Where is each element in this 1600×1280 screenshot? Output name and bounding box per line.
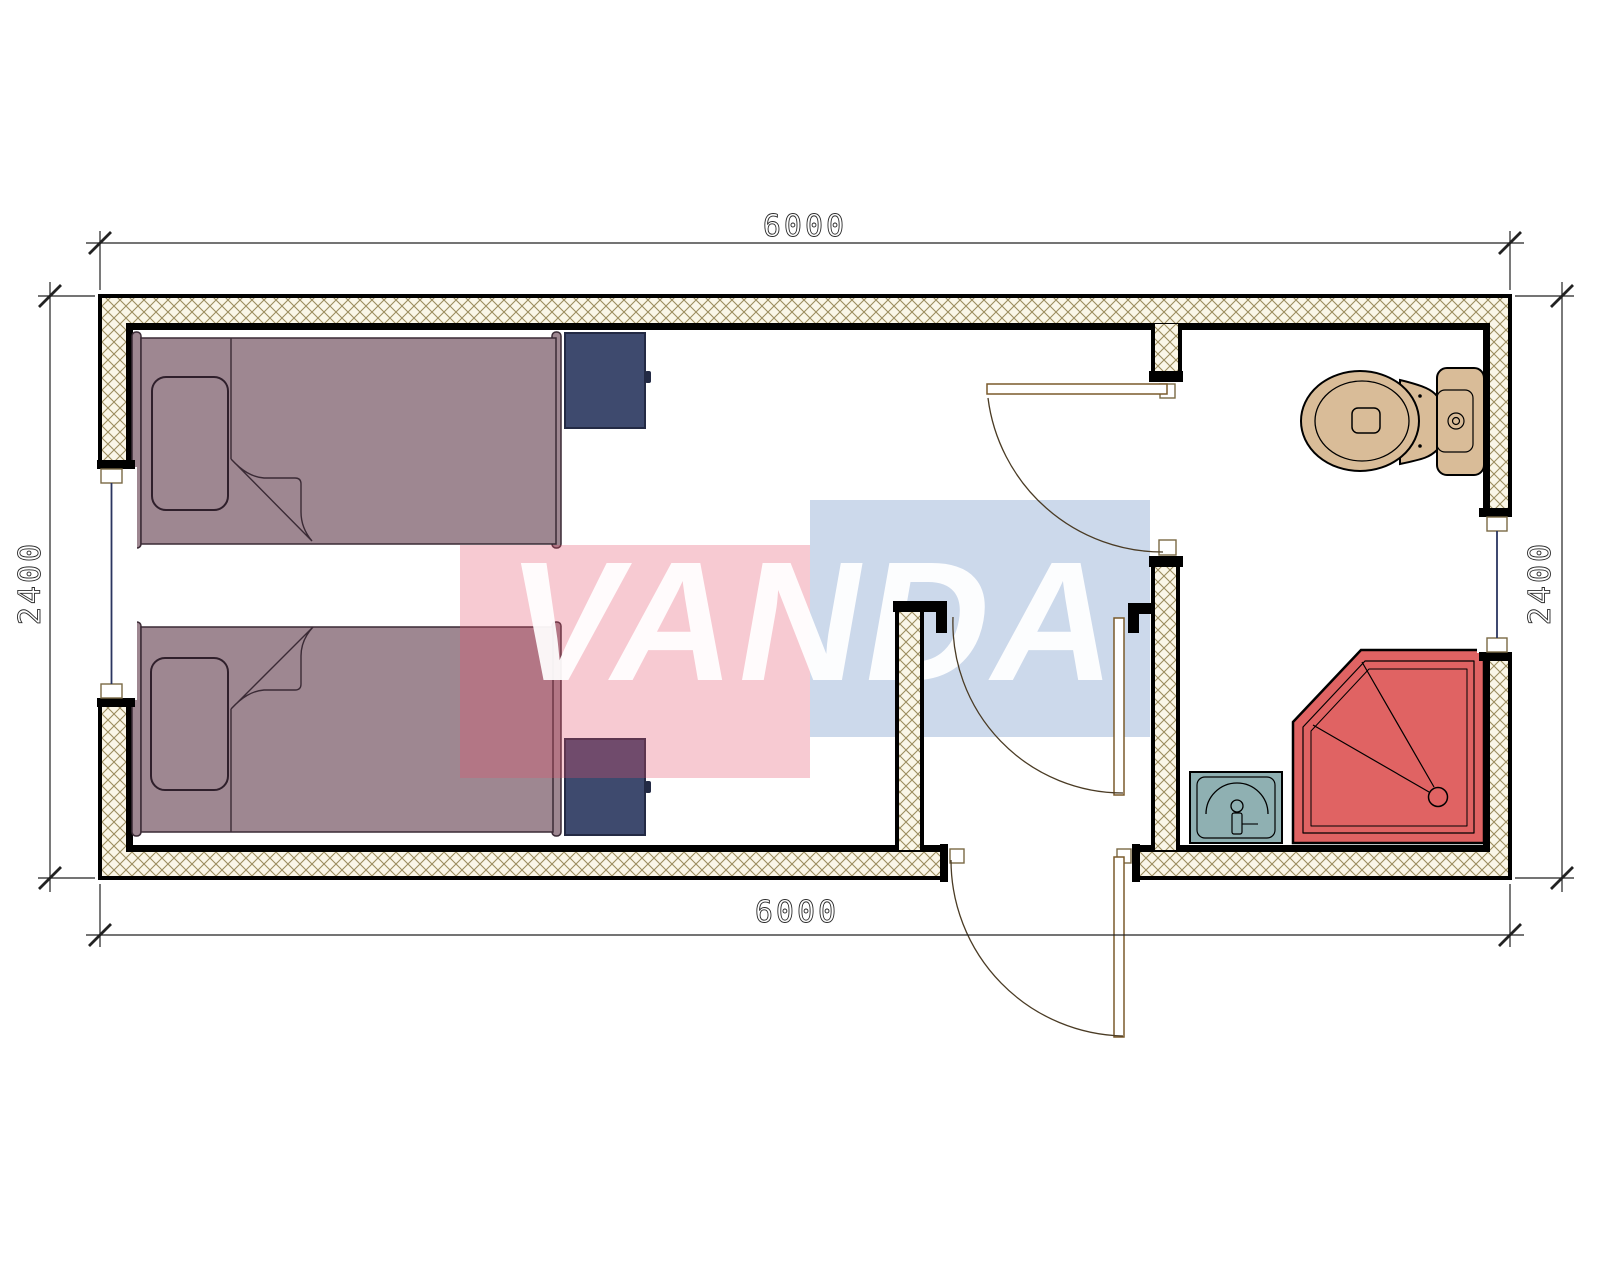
vestibule-right-cap	[1149, 556, 1183, 567]
window-right-opening	[1477, 516, 1515, 653]
vestibule-left-hatch	[897, 606, 922, 850]
vestibule-door-leaf	[1114, 618, 1124, 795]
interior-wall-top-stub-hatch	[1153, 324, 1180, 375]
vestibule-left-cap	[893, 601, 947, 612]
nightstand-top-knob	[645, 371, 651, 383]
window-left-jamb-bottom	[101, 684, 122, 698]
bed-top	[132, 332, 561, 548]
vestibule-right-edge-b	[1176, 562, 1180, 850]
entry-door-swing-arc	[951, 860, 1123, 1036]
watermark-text: VANDA	[493, 527, 1138, 717]
interior-wall-top-stub-cap	[1149, 371, 1183, 382]
toilet-tank	[1437, 368, 1484, 475]
entry-door-leaf	[1114, 857, 1124, 1037]
dimension-label-right: 2400	[1523, 541, 1558, 625]
bathroom-door-jamb-bottom	[1159, 540, 1176, 555]
entry-opening-cap-left	[940, 844, 948, 882]
bed-top-pillow	[152, 377, 228, 510]
vestibule-left-edge-a	[895, 606, 899, 850]
interior-wall-top-stub-edge-right	[1178, 324, 1182, 375]
window-left	[94, 460, 137, 707]
toilet	[1301, 368, 1484, 475]
vestibule-right-lip	[1128, 603, 1155, 614]
vestibule-right-doorstop	[1128, 614, 1139, 633]
shower-drain	[1429, 788, 1448, 807]
dimension-label-bottom: 6000	[755, 895, 839, 930]
nightstand-top	[565, 333, 651, 428]
window-right-cap-top	[1479, 508, 1512, 517]
window-left-cap-top	[97, 460, 135, 469]
entry-opening	[940, 840, 1140, 884]
window-right-cap-bottom	[1479, 652, 1512, 661]
nightstand-bottom-knob	[645, 781, 651, 793]
bed-bottom-pillow	[151, 658, 228, 790]
watermark: VANDA	[460, 500, 1150, 778]
interior-wall-top-stub-edge-left	[1151, 324, 1155, 375]
window-right-jamb-bottom	[1487, 638, 1507, 652]
floor-plan-drawing: VANDA	[0, 0, 1600, 1280]
toilet-bolt-top	[1418, 394, 1422, 398]
vestibule-right-hatch	[1153, 562, 1178, 850]
sink	[1190, 772, 1282, 843]
dimension-label-top: 6000	[763, 209, 847, 244]
bathroom-door-leaf	[987, 384, 1167, 394]
vestibule-left-doorstop	[936, 612, 947, 633]
toilet-bolt-bottom	[1418, 444, 1422, 448]
entry-jamb-left	[950, 849, 964, 863]
window-left-jamb-top	[101, 469, 122, 483]
vestibule-left-edge-b	[920, 606, 924, 850]
window-left-cap-bottom	[97, 698, 135, 707]
window-right	[1477, 508, 1515, 661]
entry-opening-cap-right	[1132, 844, 1140, 882]
window-right-jamb-top	[1487, 517, 1507, 531]
window-left-opening	[94, 467, 137, 700]
nightstand-top-body	[565, 333, 645, 428]
dimension-label-left: 2400	[13, 541, 48, 625]
toilet-bowl	[1301, 371, 1419, 471]
floor-plan-canvas: VANDA	[0, 0, 1600, 1280]
entry-door-opening	[948, 840, 1132, 884]
